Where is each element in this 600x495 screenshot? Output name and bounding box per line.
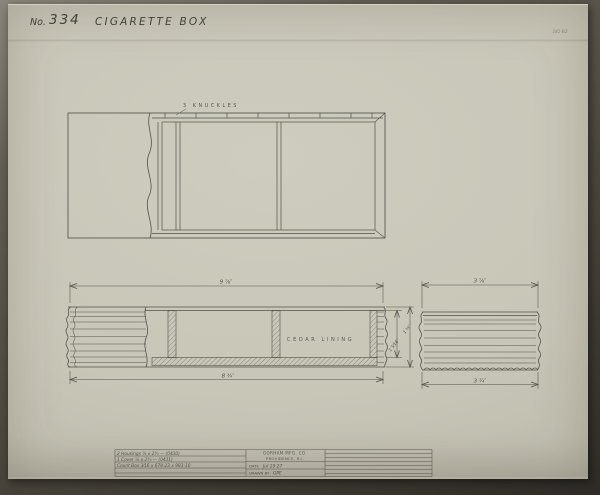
front-dim-bottom: 8 ¾″ [222, 374, 236, 380]
knuckles-label: 3 KNUCKLES [183, 103, 239, 109]
front-dim-top: 9 ⅞″ [220, 280, 234, 286]
note-line: 2 Housings ⅞ x 2¾ — (0430) [117, 451, 180, 457]
title-block-text: 2 Housings ⅞ x 2¾ — (0430) 1 Cover ⅞ x 2… [117, 451, 307, 477]
drawing-number: 334 [49, 12, 81, 28]
front-view [66, 282, 414, 384]
end-dim-bottom: 3 ¼″ [474, 379, 488, 385]
plan-view [68, 109, 385, 238]
front-dim-height-inner: 1 5⁄16″ [387, 337, 401, 353]
date-value: Jul 19 27 [262, 464, 282, 470]
end-dim-top: 3 ⅞″ [474, 279, 488, 285]
blueprint-linework: No. 334 CIGARETTE BOX 141-B2 3 KNUCKLES [0, 0, 600, 495]
company-name: GORHAM MFG. CO. [263, 451, 307, 456]
note-line: Count Box 3⁄16 x 678-23 x 983-10 [117, 463, 191, 469]
cedar-lining-label: CEDAR LINING [287, 337, 354, 343]
drawn-by-label: DRAWN BY [249, 471, 270, 476]
drawn-by-value: GPE [273, 471, 282, 477]
photograph-background: No. 334 CIGARETTE BOX 141-B2 3 KNUCKLES [0, 0, 600, 495]
corner-reference: 141-B2 [552, 29, 567, 34]
date-label: DATE [249, 464, 259, 469]
drawing-no-label: No. [30, 17, 46, 28]
drawing-title: CIGARETTE BOX [95, 16, 208, 28]
end-view [419, 281, 541, 389]
sheet-header: No. 334 CIGARETTE BOX 141-B2 [30, 12, 568, 34]
company-location: PROVIDENCE, R.I. [266, 456, 304, 461]
front-dim-height-outer: 1 ⅝″ [402, 323, 413, 335]
note-line: 1 Cover ⅞ x 2¾ — (0431) [117, 457, 173, 463]
